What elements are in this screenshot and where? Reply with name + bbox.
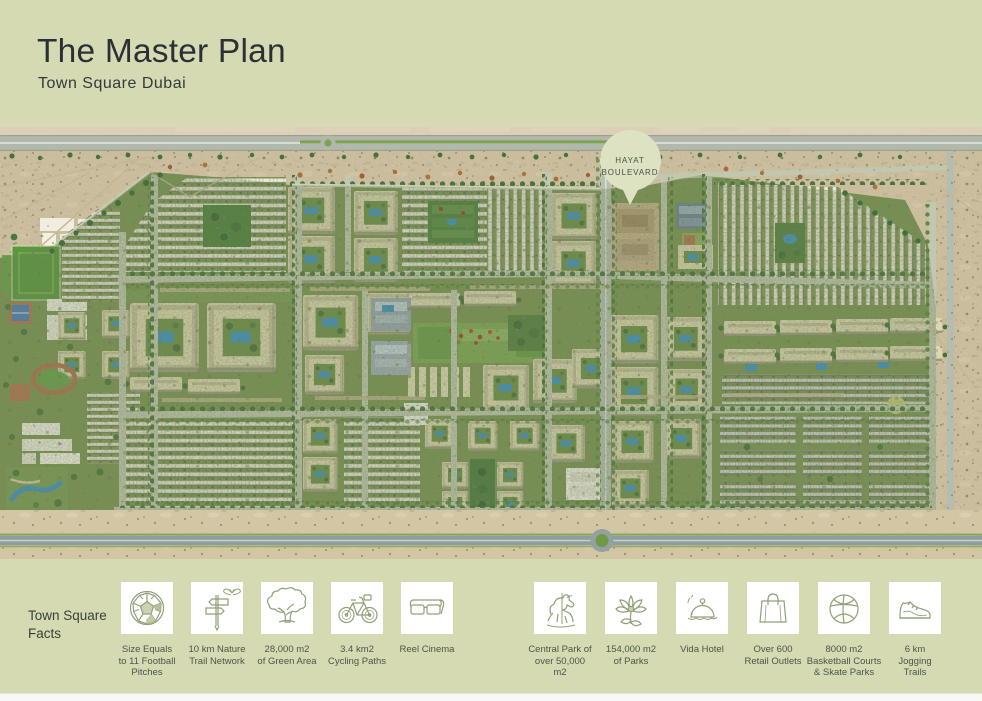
svg-text:BOULEVARD: BOULEVARD xyxy=(602,168,659,177)
svg-text:HAYAT: HAYAT xyxy=(615,156,644,165)
